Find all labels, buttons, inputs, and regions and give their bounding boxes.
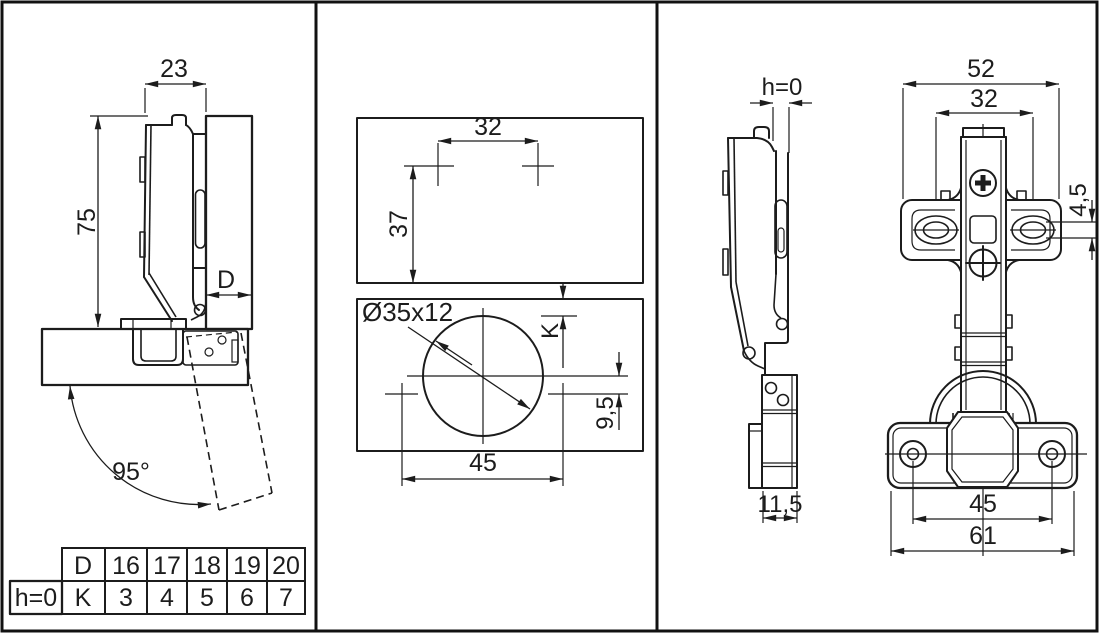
table-k-4: 4 xyxy=(160,584,174,612)
table-d-17: 17 xyxy=(153,552,181,580)
dim-32-front-label: 32 xyxy=(970,85,998,113)
dim-75-label: 75 xyxy=(73,208,101,236)
dk-table: h=0 D 16 17 18 19 20 K 3 4 5 6 7 xyxy=(10,548,305,614)
drilling-pattern-view: 32 37 Ø35x12 K 9,5 45 xyxy=(357,113,643,486)
table-header-d: D xyxy=(74,552,92,580)
table-k-6: 6 xyxy=(240,584,254,612)
table-k-3: 3 xyxy=(119,584,133,612)
dim-k-label: K xyxy=(537,323,564,339)
hinge-front-view: 52 32 xyxy=(885,55,1096,556)
drawing-canvas: 23 75 xyxy=(0,0,1099,633)
table-k-7: 7 xyxy=(279,584,293,612)
dim-95-label: 95° xyxy=(112,458,150,486)
door-closed-outline xyxy=(187,333,272,510)
table-corner-label: h=0 xyxy=(15,584,57,612)
dim-32-drill-label: 32 xyxy=(474,113,502,141)
dim-11-5-label: 11,5 xyxy=(758,491,803,518)
table-d-16: 16 xyxy=(112,552,140,580)
table-header-k: K xyxy=(75,584,92,612)
dim-23-label: 23 xyxy=(160,55,188,83)
table-d-19: 19 xyxy=(233,552,261,580)
dim-52-label: 52 xyxy=(967,55,995,83)
hinge-side-view: h=0 11,5 xyxy=(723,74,812,523)
table-d-20: 20 xyxy=(272,552,300,580)
dim-h0-label: h=0 xyxy=(762,74,803,101)
table-d-18: 18 xyxy=(193,552,221,580)
dim-45-drill-label: 45 xyxy=(469,449,497,477)
cup-bore-label: Ø35x12 xyxy=(362,297,453,327)
dim-61-label: 61 xyxy=(969,522,997,550)
dim-45-front-label: 45 xyxy=(969,490,997,518)
dim-d-label: D xyxy=(217,266,235,294)
dim-4-5-label: 4,5 xyxy=(1065,183,1092,216)
side-section-view: 23 75 xyxy=(42,55,272,510)
table-k-5: 5 xyxy=(200,584,214,612)
hinge-technical-drawing: 23 75 xyxy=(0,0,1099,633)
dim-9-5-label: 9,5 xyxy=(592,396,619,429)
dim-37-label: 37 xyxy=(385,210,413,238)
